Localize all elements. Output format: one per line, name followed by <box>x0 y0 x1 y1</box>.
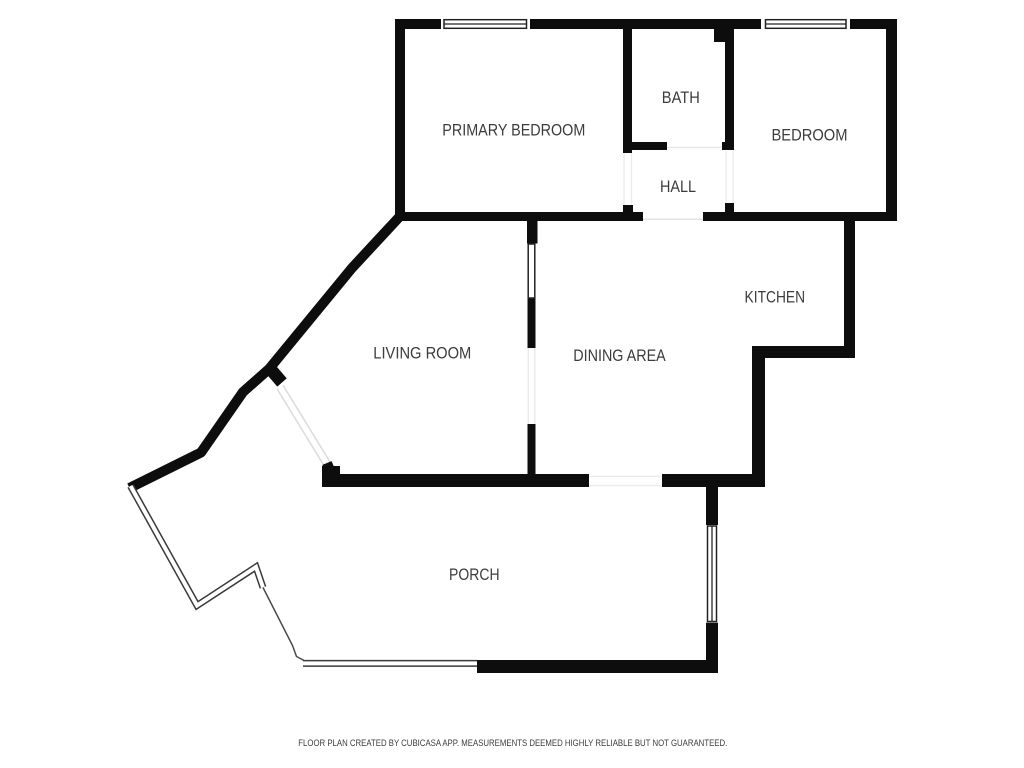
svg-text:KITCHEN: KITCHEN <box>745 288 806 307</box>
svg-text:BEDROOM: BEDROOM <box>772 126 848 145</box>
svg-text:PRIMARY BEDROOM: PRIMARY BEDROOM <box>442 121 585 140</box>
svg-text:PORCH: PORCH <box>449 565 500 584</box>
svg-text:DINING AREA: DINING AREA <box>573 346 666 365</box>
svg-text:BATH: BATH <box>662 88 700 107</box>
svg-text:HALL: HALL <box>660 177 696 196</box>
svg-text:LIVING ROOM: LIVING ROOM <box>373 344 471 363</box>
svg-text:FLOOR PLAN CREATED BY CUBICASA: FLOOR PLAN CREATED BY CUBICASA APP. MEAS… <box>298 738 727 749</box>
